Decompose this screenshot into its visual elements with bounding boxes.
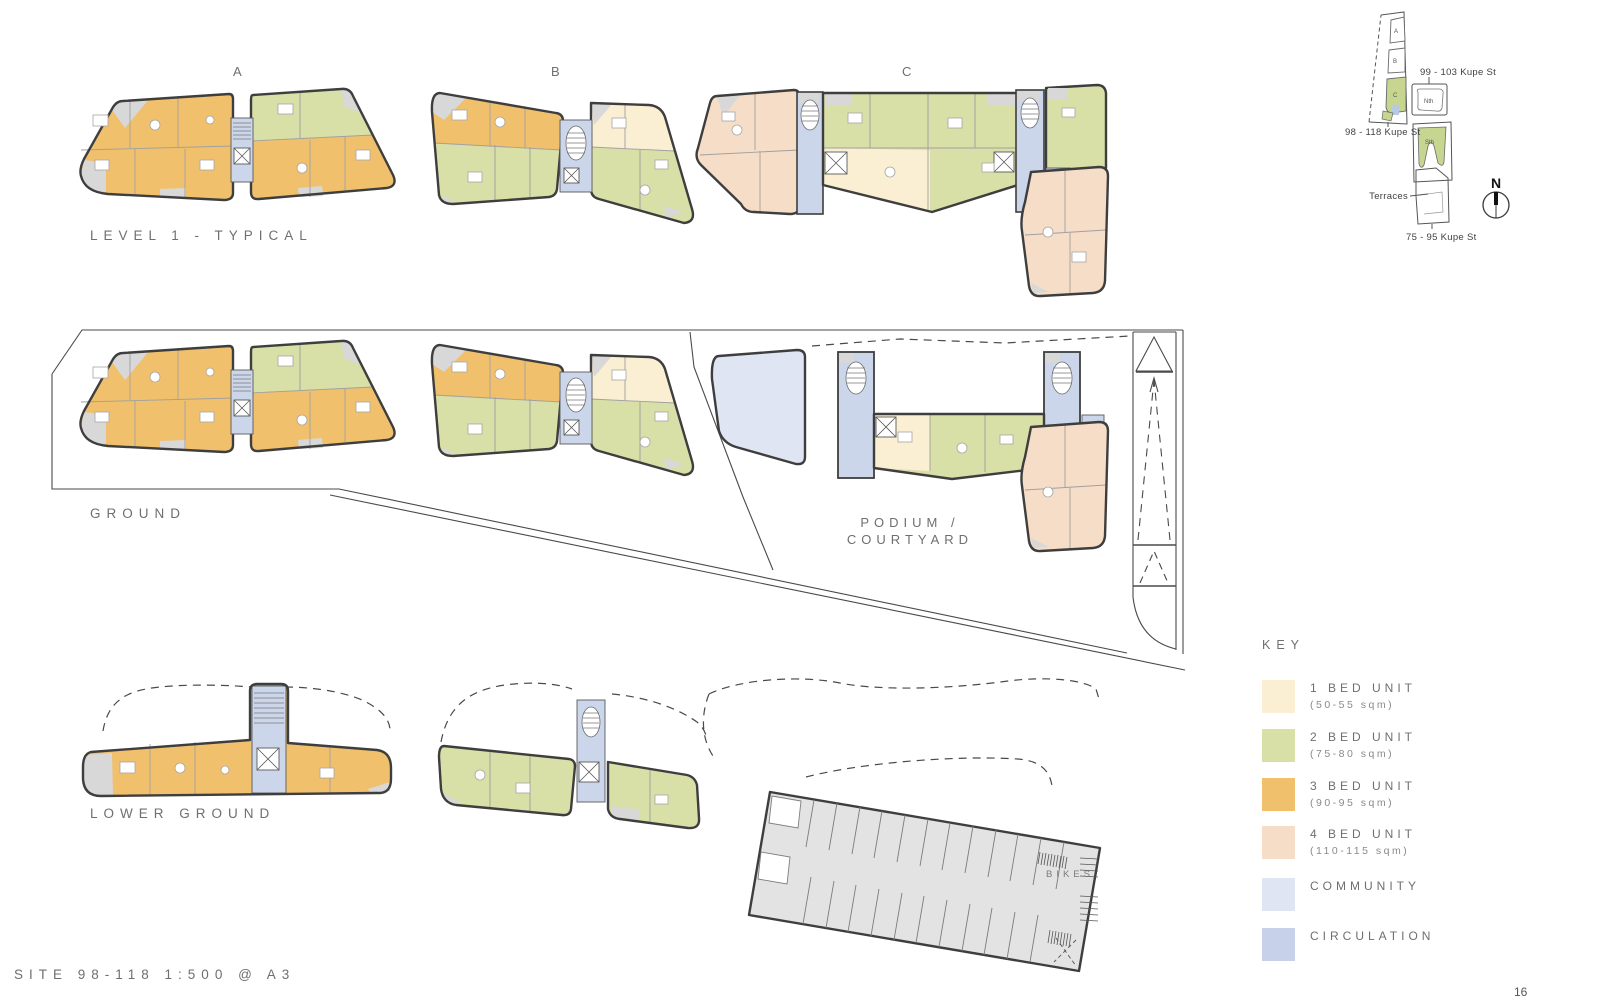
page-number: 16	[1514, 985, 1527, 999]
level1-section-title: LEVEL 1 - TYPICAL	[90, 228, 313, 243]
key-label-3bed: 3 BED UNIT	[1310, 779, 1416, 793]
parking-garage-plan	[703, 679, 1100, 971]
building-c-letter: C	[902, 64, 912, 79]
building-a-plan	[80, 89, 394, 200]
building-b-ground-plan	[432, 345, 693, 475]
key-label-1bed: 1 BED UNIT	[1310, 681, 1416, 695]
key-swatch-1bed	[1262, 680, 1295, 713]
key-title: KEY	[1262, 638, 1562, 652]
north-arrow-label: N	[1491, 175, 1501, 191]
key-item-circulation: CIRCULATION	[1262, 928, 1434, 961]
key-label-community: COMMUNITY	[1310, 879, 1420, 893]
minimap-south-site-label: 75 - 95 Kupe St	[1406, 232, 1477, 243]
key-swatch-3bed	[1262, 778, 1295, 811]
lower-ground-section-title: LOWER GROUND	[90, 806, 275, 821]
plan-sheet: A B C Nth Sth 99 - 103 Kupe St 98 - 118 …	[0, 0, 1600, 1000]
key-label-circulation: CIRCULATION	[1310, 929, 1434, 943]
minimap-building-c-label: C	[1393, 93, 1398, 99]
building-b-letter: B	[551, 64, 561, 79]
north-arrow-icon: N	[1483, 175, 1509, 218]
building-b-plan	[432, 93, 693, 223]
key-item-1bed: 1 BED UNIT (50-55 sqm)	[1262, 680, 1416, 713]
minimap-nth-label: Nth	[1424, 99, 1433, 105]
minimap-building-b-label: B	[1393, 59, 1397, 65]
minimap-sth-label: Sth	[1425, 140, 1434, 146]
podium-courtyard-label: PODIUM / COURTYARD	[800, 514, 1020, 548]
key-item-2bed: 2 BED UNIT (75-80 sqm)	[1262, 729, 1416, 762]
building-b-lower-ground-plan	[439, 683, 707, 828]
key-swatch-community	[1262, 878, 1295, 911]
building-a-ground-plan	[80, 341, 394, 452]
key-sublabel-4bed: (110-115 sqm)	[1310, 845, 1416, 857]
building-a-letter: A	[233, 64, 243, 79]
key-item-community: COMMUNITY	[1262, 878, 1420, 911]
podium-label-line2: COURTYARD	[800, 531, 1020, 548]
key-item-3bed: 3 BED UNIT (90-95 sqm)	[1262, 778, 1416, 811]
minimap-terraces-label: Terraces	[1369, 191, 1408, 202]
key-swatch-2bed	[1262, 729, 1295, 762]
vehicle-ramp	[1133, 332, 1176, 650]
building-c-level1-plan	[697, 85, 1108, 296]
key-item-4bed: 4 BED UNIT (110-115 sqm)	[1262, 826, 1416, 859]
minimap-building-a-label: A	[1394, 29, 1398, 35]
key-sublabel-3bed: (90-95 sqm)	[1310, 797, 1416, 809]
key-label-2bed: 2 BED UNIT	[1310, 730, 1416, 744]
sheet-footer-title: SITE 98-118 1:500 @ A3	[14, 967, 295, 982]
key-swatch-circulation	[1262, 928, 1295, 961]
key-swatch-4bed	[1262, 826, 1295, 859]
bikes-label: BIKES	[1046, 869, 1094, 880]
site-location-minimap: A B C Nth Sth 99 - 103 Kupe St 98 - 118 …	[1345, 12, 1509, 243]
key-label-4bed: 4 BED UNIT	[1310, 827, 1416, 841]
minimap-north-site-label: 99 - 103 Kupe St	[1420, 67, 1496, 78]
ground-section-title: GROUND	[90, 506, 186, 521]
key-legend: KEY 1 BED UNIT (50-55 sqm) 2 BED UNIT (7…	[1262, 638, 1562, 652]
podium-label-line1: PODIUM /	[800, 514, 1020, 531]
key-sublabel-2bed: (75-80 sqm)	[1310, 748, 1416, 760]
key-sublabel-1bed: (50-55 sqm)	[1310, 699, 1416, 711]
minimap-site-label: 98 - 118 Kupe St	[1345, 127, 1420, 138]
building-a-lower-ground-plan	[83, 684, 391, 796]
